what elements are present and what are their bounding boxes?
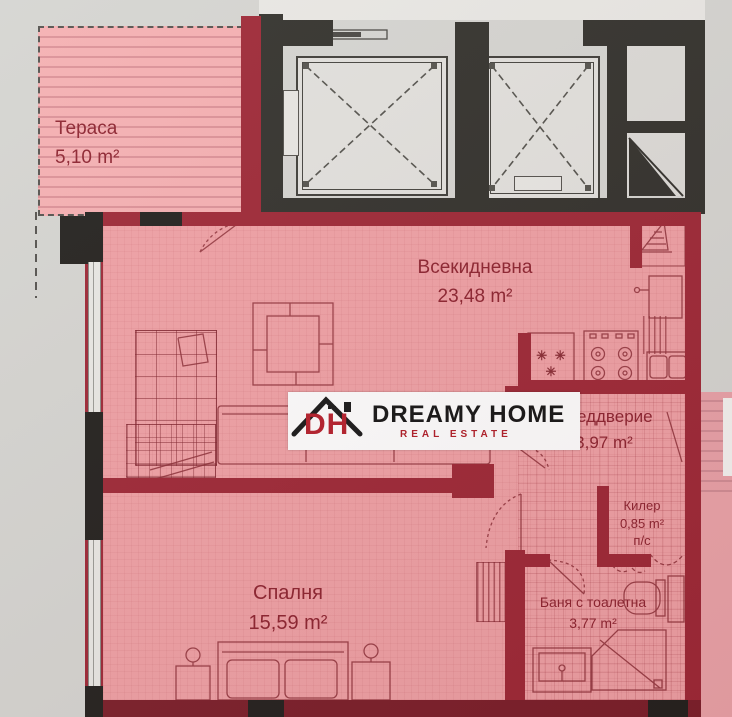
closet-label: Килер 0,85 m² п/с bbox=[600, 497, 684, 550]
logo-monogram: DH bbox=[304, 408, 349, 442]
room-area: 3,77 m² bbox=[518, 613, 668, 634]
living-room-label: Всекидневна 23,48 m² bbox=[385, 254, 565, 311]
coffee-table-icon bbox=[253, 303, 333, 385]
bathroom-label: Баня с тоалетна 3,77 m² bbox=[518, 592, 668, 634]
bathroom-door-icon bbox=[548, 560, 584, 594]
shower-icon bbox=[592, 630, 666, 690]
logo-brand-text: DREAMY HOME bbox=[372, 401, 565, 429]
wall bbox=[648, 700, 688, 717]
bed-icon bbox=[218, 642, 348, 700]
wall bbox=[685, 20, 705, 214]
elevator-cross-ends bbox=[303, 63, 591, 191]
elevator-cross-icon bbox=[306, 66, 588, 188]
terrace-label: Тераса 5,10 m² bbox=[55, 115, 175, 172]
floorplan-canvas: ✳ ✳ ✳ Тераса 5,10 m² Всекидневна 23,48 m… bbox=[0, 0, 732, 717]
bedroom-door-icon bbox=[486, 494, 521, 550]
window bbox=[88, 262, 101, 412]
wall bbox=[685, 212, 701, 717]
wall bbox=[452, 464, 494, 498]
bedroom-label: Спалня 15,59 m² bbox=[198, 578, 378, 638]
wall bbox=[627, 121, 685, 133]
room-note: п/с bbox=[600, 532, 684, 550]
room-name: Спалня bbox=[198, 578, 378, 608]
wall bbox=[607, 44, 627, 212]
wall bbox=[630, 216, 642, 268]
room-name: Баня с тоалетна bbox=[518, 592, 668, 613]
wall bbox=[60, 216, 90, 264]
wall bbox=[583, 20, 685, 46]
shaft-diagonal bbox=[629, 138, 683, 196]
wall bbox=[85, 412, 103, 540]
kitchen-marks: ✳ ✳ ✳ bbox=[530, 348, 574, 380]
room-name: Всекидневна bbox=[385, 254, 565, 283]
room-area: 0,85 m² bbox=[600, 515, 684, 533]
room-area: 23,48 m² bbox=[385, 283, 565, 312]
room-name: Тераса bbox=[55, 115, 175, 144]
shelf-items-icon bbox=[150, 334, 214, 480]
fridge-icon bbox=[635, 276, 683, 318]
agency-watermark: DH DREAMY HOME REAL ESTATE bbox=[288, 392, 580, 450]
wall bbox=[455, 22, 489, 214]
wall bbox=[259, 14, 283, 212]
wall bbox=[103, 478, 459, 493]
room-name: Килер bbox=[600, 497, 684, 515]
room-area: 5,10 m² bbox=[55, 144, 175, 173]
wall bbox=[518, 554, 550, 567]
wall bbox=[85, 686, 103, 717]
wall bbox=[597, 554, 651, 567]
wall bbox=[140, 212, 182, 226]
wall bbox=[283, 20, 333, 46]
window bbox=[88, 540, 101, 686]
room-area: 15,59 m² bbox=[198, 608, 378, 638]
wall bbox=[85, 700, 701, 717]
wall bbox=[248, 700, 284, 717]
bath-sink-icon bbox=[533, 648, 591, 692]
terrace-door-icon bbox=[200, 222, 240, 252]
logo-tagline-text: REAL ESTATE bbox=[400, 429, 512, 440]
kitchen-sink-icon bbox=[647, 352, 689, 382]
wall bbox=[241, 16, 261, 212]
